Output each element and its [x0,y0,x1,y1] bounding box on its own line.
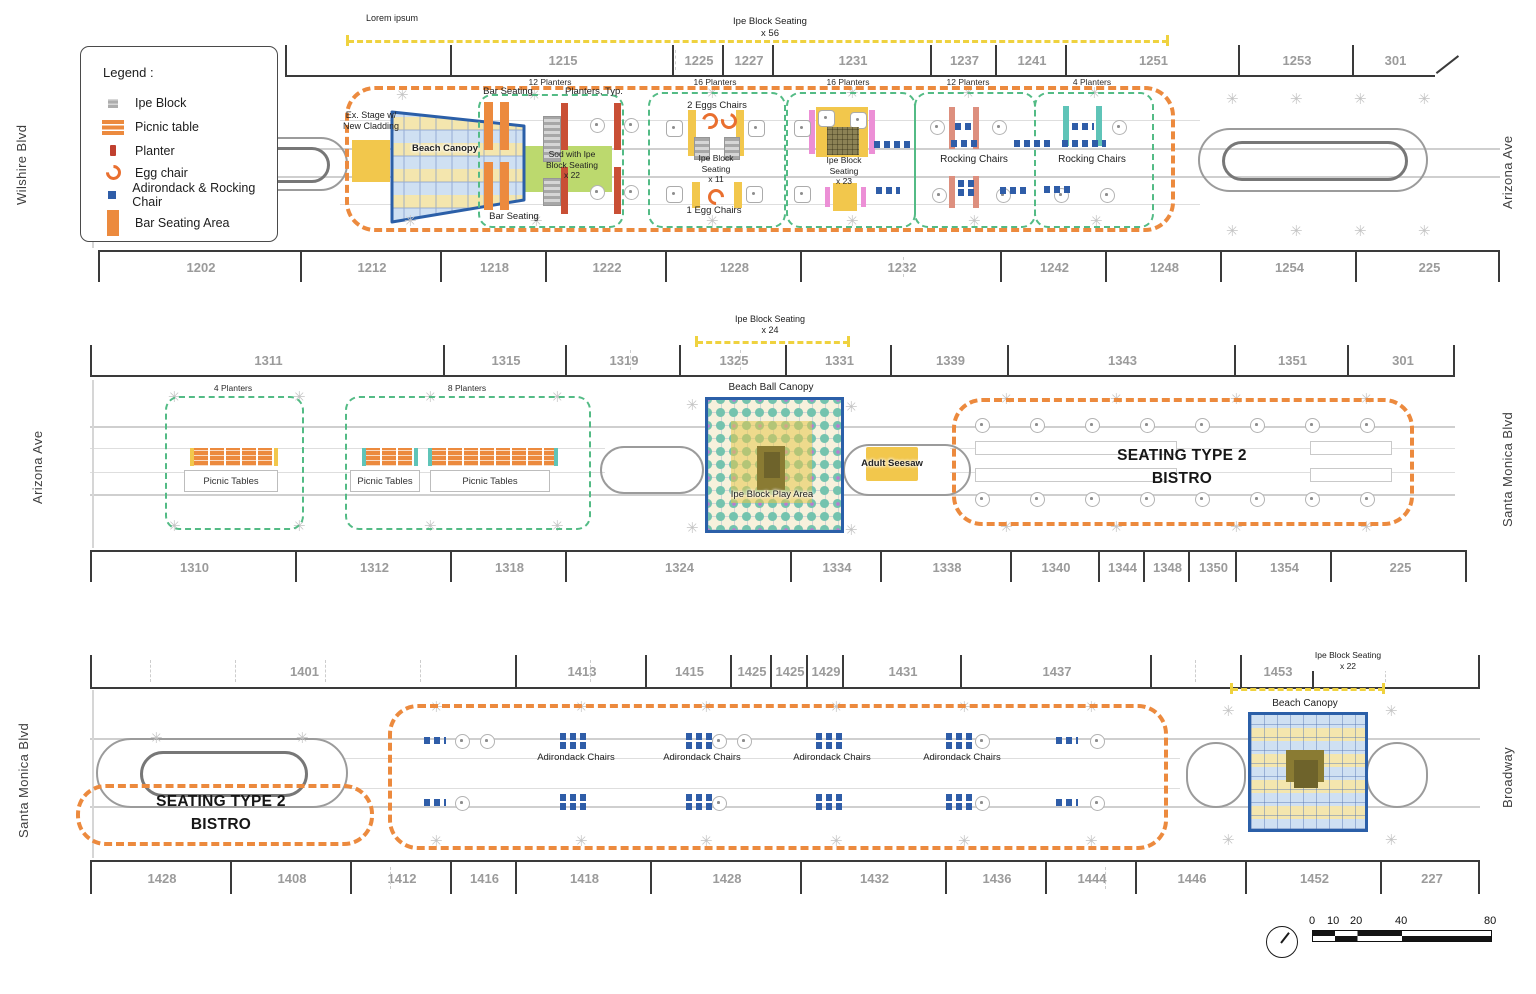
address-band-row3-top: 1401 1413 1415 1425 1425 1429 1431 1437 … [90,655,1480,689]
address-cell: 1412 [350,862,452,894]
address-cell: 1251 [1065,45,1240,75]
rocking-chairs-label: Rocking Chairs [928,154,1020,167]
address-cell: 1343 [1007,345,1236,375]
address-cell: 1416 [450,862,517,894]
adirondack-squares [1056,799,1078,806]
address-cell: 1436 [945,862,1047,894]
egg-chair-1-label: 1 Egg Chairs [668,205,760,217]
address-cell: 1425 [730,655,772,687]
egg-chairs-2-label: 2 Eggs Chairs [672,100,762,112]
address-cell: 1338 [880,552,1012,582]
legend-title: Legend : [103,65,154,80]
address-cell: 1315 [443,345,567,375]
tree-icon: ✳ [1418,92,1431,107]
address-cell: 1444 [1045,862,1137,894]
rocking-chairs-label: Rocking Chairs [1040,154,1144,167]
tree-icon: ✳ [1226,224,1239,239]
ipe-seating-11-label: Ipe Block Seating x 11 [686,153,746,185]
scale-tick-label: 10 [1327,915,1339,927]
address-cell: 1432 [800,862,947,894]
adirondack-squares [816,794,846,810]
address-band-row1-top: 1215 1225 1227 1231 1237 1241 1251 1253 … [285,45,1435,77]
beach-canopy-label: Beach Canopy [405,143,485,155]
address-cell: 1350 [1188,552,1237,582]
dimension-line-row3 [1232,688,1384,691]
tree-icon: ✳ [296,731,309,746]
scale-tick-label: 80 [1484,915,1496,927]
tick [1478,862,1480,894]
address-cell: 1237 [930,45,997,75]
street-name-right-row3: Broadway [1500,725,1520,830]
address-cell: 1415 [645,655,732,687]
green-zone-4-planters [165,396,304,530]
planter-count-label: 4 Planters [1052,77,1132,87]
address-cell: 1431 [842,655,962,687]
green-zone-8-planters [345,396,591,530]
dimension-label-row1: Ipe Block Seating x 56 [718,16,822,40]
ipe-block-icon [101,99,125,108]
address-cell: 1225 [672,45,724,75]
planter-count-label: 4 Planters [193,383,273,393]
rocking-chair-squares [951,140,981,147]
address-cell: 1452 [1245,862,1382,894]
address-cell: 1418 [515,862,652,894]
adirondack-squares [424,737,446,744]
address-band-row2-top: 1311 1315 1319 1325 1331 1339 1343 1351 … [90,345,1455,377]
street-name-left-row2: Arizona Ave [30,405,50,530]
adirondack-chairs-label: Adirondack Chairs [918,752,1006,764]
address-cell: 1253 [1238,45,1354,75]
address-cell: 1324 [565,552,792,582]
address-cell: 1241 [995,45,1067,75]
scale-tick-label: 0 [1309,915,1315,927]
tree-icon: ✳ [1354,224,1367,239]
tick [1478,655,1480,687]
tree-icon: ✳ [1290,92,1303,107]
dimension-tick [1382,683,1385,694]
ipe-block-mound [764,452,780,478]
tick [1105,867,1106,889]
planters-typ-label: Planters, Typ. [556,86,632,98]
tree-icon: ✳ [150,731,163,746]
tick [590,660,591,682]
site-plan: Wilshire Blvd Arizona Ave Lorem ipsum Ip… [0,0,1536,994]
tree-icon: ✳ [686,521,699,536]
adirondack-chair-icon [101,191,122,199]
bistro-label-row2: SEATING TYPE 2 BISTRO [1062,444,1302,491]
adult-seesaw-label: Adult Seesaw [836,458,948,470]
beach-canopy-label-row3: Beach Canopy [1254,698,1356,711]
planter-count-label: 12 Planters [928,77,1008,87]
tick [675,50,676,70]
street-name-left-row1: Wilshire Blvd [14,100,34,230]
address-cell: 1428 [90,862,232,894]
ipe-seating-23-label: Ipe Block Seating x 23 [816,155,872,187]
rocking-chair-squares [1044,186,1070,193]
tick [420,660,421,682]
median-island [600,446,704,494]
tick [150,660,151,682]
address-band-row3-bottom: 1428 1408 1412 1416 1418 1428 1432 1436 … [90,860,1480,894]
egg-chair-icon [101,165,125,180]
median-island [1186,742,1246,808]
road-line [92,380,94,548]
address-cell: 1331 [785,345,892,375]
address-cell: 1429 [806,655,844,687]
dimension-label-row2: Ipe Block Seating x 24 [712,314,828,337]
note-label: Lorem ipsum [352,13,432,24]
tree-icon: ✳ [1290,224,1303,239]
address-cell: 227 [1380,862,1482,894]
address-cell: 1202 [98,252,302,282]
adirondack-chairs-label: Adirondack Chairs [788,752,876,764]
address-cell: 1222 [545,252,667,282]
street-name-right-row1: Arizona Ave [1500,112,1520,232]
tree-icon: ✳ [1226,92,1239,107]
adirondack-squares [1056,737,1078,744]
address-cell: 1344 [1098,552,1145,582]
address-cell: 1437 [960,655,1152,687]
picnic-table-icon [101,119,125,135]
dimension-tick [847,336,850,347]
address-cell: 1254 [1220,252,1357,282]
legend-item: Adirondack & Rocking Chair [101,185,271,205]
tree-icon: ✳ [1222,704,1235,719]
planter-count-label: 16 Planters [808,77,888,87]
dimension-label-row3: Ipe Block Seating x 22 [1294,650,1402,671]
address-cell: 301 [1347,345,1457,375]
median-island [1366,742,1428,808]
tick [1498,252,1500,282]
median-island-inner [1222,141,1408,181]
tick [1453,345,1455,375]
legend: Legend : Ipe Block Picnic table Planter … [80,46,278,242]
dimension-tick [346,35,349,46]
tree-icon: ✳ [1385,833,1398,848]
address-cell [285,45,452,75]
address-cell: 1231 [772,45,932,75]
address-cell: 1351 [1234,345,1349,375]
picnic-tables-label: Picnic Tables [184,470,278,492]
street-name-left-row3: Santa Monica Blvd [16,700,36,860]
adirondack-squares [424,799,446,806]
adirondack-squares [560,733,590,749]
address-cell [1150,655,1242,687]
picnic-tables-label: Picnic Tables [350,470,420,492]
address-cell: 1228 [665,252,802,282]
street-name-right-row2: Santa Monica Blvd [1500,392,1520,547]
beach-ball-canopy-label: Beach Ball Canopy [688,382,854,395]
address-cell: 1348 [1143,552,1190,582]
address-cell: 1311 [90,345,445,375]
address-cell: 225 [1355,252,1502,282]
rocking-chair-squares [1000,187,1026,194]
address-band-row2-bottom: 1310 1312 1318 1324 1334 1338 1340 1344 … [90,550,1467,582]
tree-icon: ✳ [845,523,858,538]
tick [1195,660,1196,682]
legend-item: Bar Seating Area [101,208,271,238]
north-arrow-icon [1266,926,1298,958]
ipe-block-mound [1294,760,1318,788]
orange-zone-row3 [388,704,1168,850]
legend-item: Egg chair [101,163,271,182]
address-cell: 1318 [450,552,567,582]
bar-seating-icon [101,210,125,236]
address-cell: 1339 [890,345,1009,375]
tick [1465,552,1467,582]
tick [903,257,904,277]
address-cell: 1408 [230,862,352,894]
address-cell: 1215 [450,45,674,75]
bistro-label-row3: SEATING TYPE 2 BISTRO [108,790,334,837]
legend-item: Picnic table [101,116,271,138]
dimension-line-row2 [697,341,849,344]
tick [630,350,631,370]
address-cell: 1354 [1235,552,1332,582]
address-cell: 1319 [565,345,681,375]
adirondack-squares [816,733,846,749]
sod-label: Sod with Ipe Block Seating x 22 [536,149,608,181]
rocking-chair-squares [955,123,975,130]
address-cell: 301 [1352,45,1437,75]
band-end-slash [1436,55,1459,74]
address-cell: 1212 [300,252,442,282]
rocking-chair-squares [958,180,974,196]
tree-icon: ✳ [1222,833,1235,848]
adirondack-squares [686,794,716,810]
address-cell: 1248 [1105,252,1222,282]
stage-label: Ex. Stage w/ New Cladding [333,110,409,133]
address-cell: 225 [1330,552,1469,582]
address-cell: 1340 [1010,552,1100,582]
tree-icon: ✳ [686,398,699,413]
adirondack-squares [560,794,590,810]
adirondack-squares [876,187,900,194]
tree-icon: ✳ [845,400,858,415]
dimension-line-row1 [348,40,1168,43]
bar-seating-label-bottom: Bar Seating [468,211,560,223]
planter-count-label: 8 Planters [427,383,507,393]
adirondack-chairs-label: Adirondack Chairs [532,752,620,764]
address-band-row1-bottom: 1202 1212 1218 1222 1228 1232 1242 1248 … [98,250,1500,282]
tree-icon: ✳ [1418,224,1431,239]
dimension-tick [1166,35,1169,46]
scale-bar [1312,930,1492,942]
dimension-tick [1230,683,1233,694]
address-cell: 1325 [679,345,787,375]
adirondack-squares [686,733,716,749]
picnic-tables-label: Picnic Tables [430,470,550,492]
scale-tick-label: 20 [1350,915,1362,927]
adirondack-chairs-label: Adirondack Chairs [658,752,746,764]
bar-seating-label-top: Bar Seating [462,86,554,98]
adirondack-squares [946,794,976,810]
address-cell: 1218 [440,252,547,282]
address-cell: 1446 [1135,862,1247,894]
tick [390,867,391,889]
address-cell: 1310 [90,552,297,582]
address-cell: 1232 [800,252,1002,282]
rocking-chair-squares [1014,140,1050,147]
address-cell: 1428 [650,862,802,894]
planter-icon [101,145,125,156]
legend-item: Planter [101,141,271,160]
dimension-tick [695,336,698,347]
tick [325,660,326,682]
tick [235,660,236,682]
address-cell: 1334 [790,552,882,582]
address-cell: 1425 [770,655,808,687]
tree-icon: ✳ [1354,92,1367,107]
adirondack-squares [874,141,910,148]
address-cell: 1242 [1000,252,1107,282]
rocking-chair-squares [1062,140,1106,147]
legend-item: Ipe Block [101,93,271,113]
scale-tick-label: 40 [1395,915,1407,927]
address-cell: 1312 [295,552,452,582]
address-cell: 1401 [90,655,517,687]
adirondack-squares [946,733,976,749]
tick [740,350,741,370]
ipe-block-grid [827,127,859,155]
play-area-label: Ipe Block Play Area [716,489,828,501]
address-cell: 1413 [515,655,647,687]
address-cell: 1227 [722,45,774,75]
rocking-chair-squares [1072,123,1094,130]
planter-count-label: 16 Planters [675,77,755,87]
tree-icon: ✳ [1385,704,1398,719]
